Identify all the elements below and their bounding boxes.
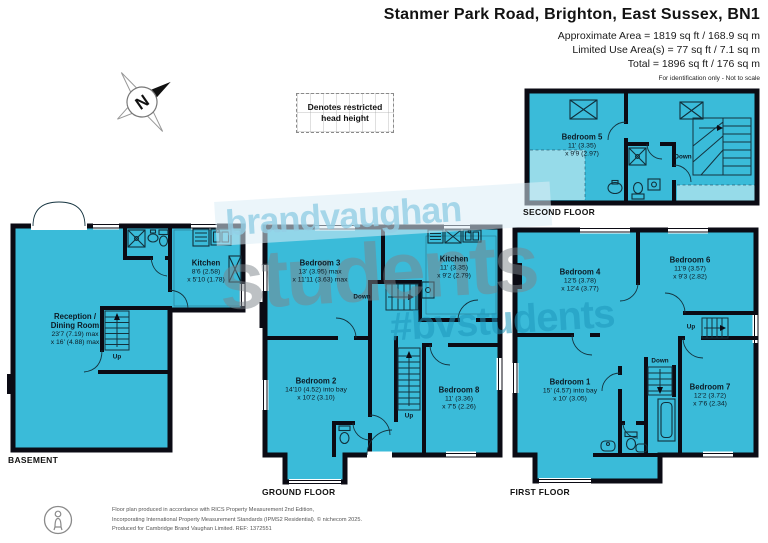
room-label-ground-kitchen: Kitchen 11' (3.35) x 9'2 (2.79) (437, 256, 471, 281)
floor-plan-ground: Bedroom 3 13' (3.95) max x 11'11 (3.63) … (258, 220, 505, 505)
floor-plan-basement-drawing (5, 200, 250, 458)
footer-text: Floor plan produced in accordance with R… (112, 506, 362, 535)
stairs-down-label: Down (674, 154, 691, 161)
restricted-area (677, 185, 755, 201)
floor-plan-first-drawing (508, 223, 768, 487)
room-label-basement-kitchen: Kitchen 8'6 (2.58) x 5'10 (1.78) (187, 260, 225, 285)
room-label-bedroom2: Bedroom 2 14'10 (4.52) into bay x 10'2 (… (285, 378, 347, 403)
room-label-bedroom6: Bedroom 6 11'9 (3.57) x 9'3 (2.82) (670, 257, 711, 282)
person-icon (42, 504, 74, 536)
floor-plan-second: Bedroom 5 11' (3.35) x 9'9 (2.97) Down S… (520, 88, 768, 221)
total-area: Total = 1896 sq ft / 176 sq m (384, 57, 760, 71)
footer: Floor plan produced in accordance with R… (42, 504, 562, 540)
stairs-down-label: Down (353, 294, 370, 301)
approximate-area: Approximate Area = 1819 sq ft / 168.9 sq… (384, 29, 760, 43)
restricted-head-height-legend: Denotes restricted head height (296, 93, 394, 133)
room-label-bedroom7: Bedroom 7 12'2 (3.72) x 7'6 (2.34) (690, 384, 731, 409)
footer-line-1: Floor plan produced in accordance with R… (112, 506, 362, 516)
area-summary: Approximate Area = 1819 sq ft / 168.9 sq… (384, 29, 760, 71)
floor-plan-second-drawing (520, 88, 766, 206)
room-label-bedroom3: Bedroom 3 13' (3.95) max x 11'11 (3.63) … (292, 260, 347, 285)
disclaimer: For identification only - Not to scale (384, 75, 760, 82)
floor-label-basement: BASEMENT (8, 455, 58, 465)
legend-text: Denotes restricted head height (305, 102, 385, 124)
room-label-bedroom4: Bedroom 4 12'5 (3.78) x 12'4 (3.77) (560, 269, 601, 294)
floorplan-page: Stanmer Park Road, Brighton, East Sussex… (0, 0, 768, 543)
floor-plan-first: Bedroom 4 12'5 (3.78) x 12'4 (3.77) Bedr… (508, 223, 768, 503)
floor-label-ground: GROUND FLOOR (262, 487, 335, 497)
floor-label-first: FIRST FLOOR (510, 487, 570, 497)
floor-label-second: SECOND FLOOR (523, 207, 595, 217)
floor-plan-basement: Reception / Dining Room 23'7 (7.19) max … (5, 200, 250, 475)
room-label-bedroom8: Bedroom 8 11' (3.36) x 7'5 (2.26) (439, 387, 480, 412)
footer-line-3: Produced for Cambridge Brand Vaughan Lim… (112, 525, 362, 535)
room-label-bedroom1: Bedroom 1 15' (4.57) into bay x 10' (3.0… (543, 379, 597, 404)
header: Stanmer Park Road, Brighton, East Sussex… (384, 6, 760, 82)
footer-line-2: Incorporating International Property Mea… (112, 516, 362, 526)
stairs-up-label: Up (113, 354, 121, 361)
stairs-down-label: Down (651, 358, 668, 365)
stairs-up-label: Up (687, 324, 695, 331)
room-label-reception-dining: Reception / Dining Room 23'7 (7.19) max … (51, 313, 100, 347)
room-label-bedroom5: Bedroom 5 11' (3.35) x 9'9 (2.97) (562, 134, 603, 159)
page-title: Stanmer Park Road, Brighton, East Sussex… (384, 6, 760, 24)
limited-use-area: Limited Use Area(s) = 77 sq ft / 7.1 sq … (384, 43, 760, 57)
compass-north-icon: N (102, 62, 182, 142)
stairs-up-label: Up (405, 413, 413, 420)
